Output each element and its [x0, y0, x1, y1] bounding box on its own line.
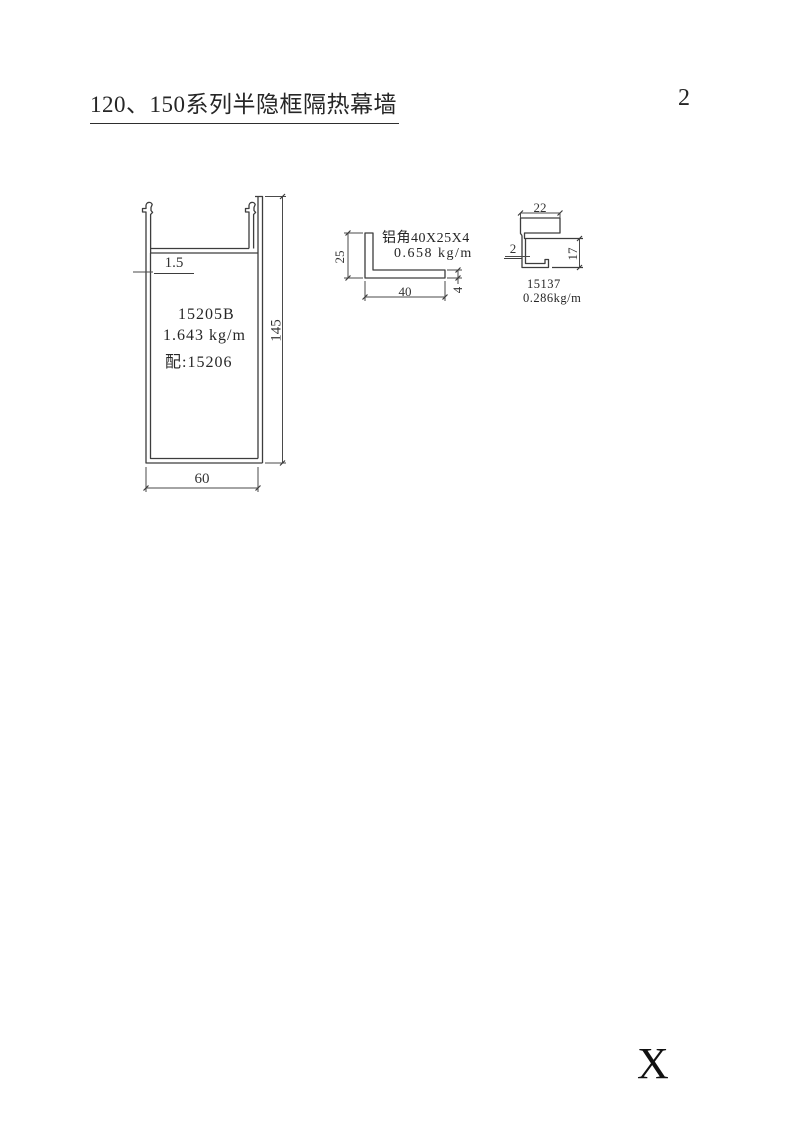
dim-label-thickness-2: 2: [504, 241, 522, 259]
channel-profile-weight: 0.286kg/m: [523, 291, 581, 306]
page-number: 2: [678, 85, 690, 112]
right-hook-wall: [246, 202, 256, 248]
catalog-page: 120、150系列半隐框隔热幕墙 2 15205B 1.643 kg/m 配:1…: [0, 0, 800, 1131]
dim-label-thickness-4: 4: [450, 282, 466, 298]
left-hook-wall: [143, 202, 153, 253]
main-profile-match: 配:15206: [165, 348, 232, 372]
channel-body: [522, 236, 549, 268]
dim-label-height-17: 17: [565, 246, 581, 262]
dim-label-base-40: 40: [396, 284, 414, 300]
angle-profile-weight: 0.658 kg/m: [394, 246, 473, 262]
dim-label-leg-25: 25: [332, 248, 348, 266]
angle-profile-name: 铝角40X25X4: [382, 227, 470, 247]
dim-label-thickness-1-5: 1.5: [154, 255, 194, 274]
page-title: 120、150系列半隐框隔热幕墙: [90, 85, 399, 124]
channel-profile-model: 15137: [527, 277, 561, 292]
channel-top-flange: [521, 218, 584, 239]
technical-drawing-canvas: [0, 0, 800, 1131]
main-profile-model: 15205B: [178, 306, 235, 324]
main-profile-weight: 1.643 kg/m: [163, 327, 246, 345]
right-fin-outer: [255, 197, 263, 464]
dim-label-width-22: 22: [532, 200, 548, 216]
channel-web: [151, 249, 259, 254]
dim-label-width-60: 60: [188, 471, 216, 488]
dim-label-height-145: 145: [269, 316, 286, 346]
footer-section-mark: X: [637, 1038, 669, 1089]
